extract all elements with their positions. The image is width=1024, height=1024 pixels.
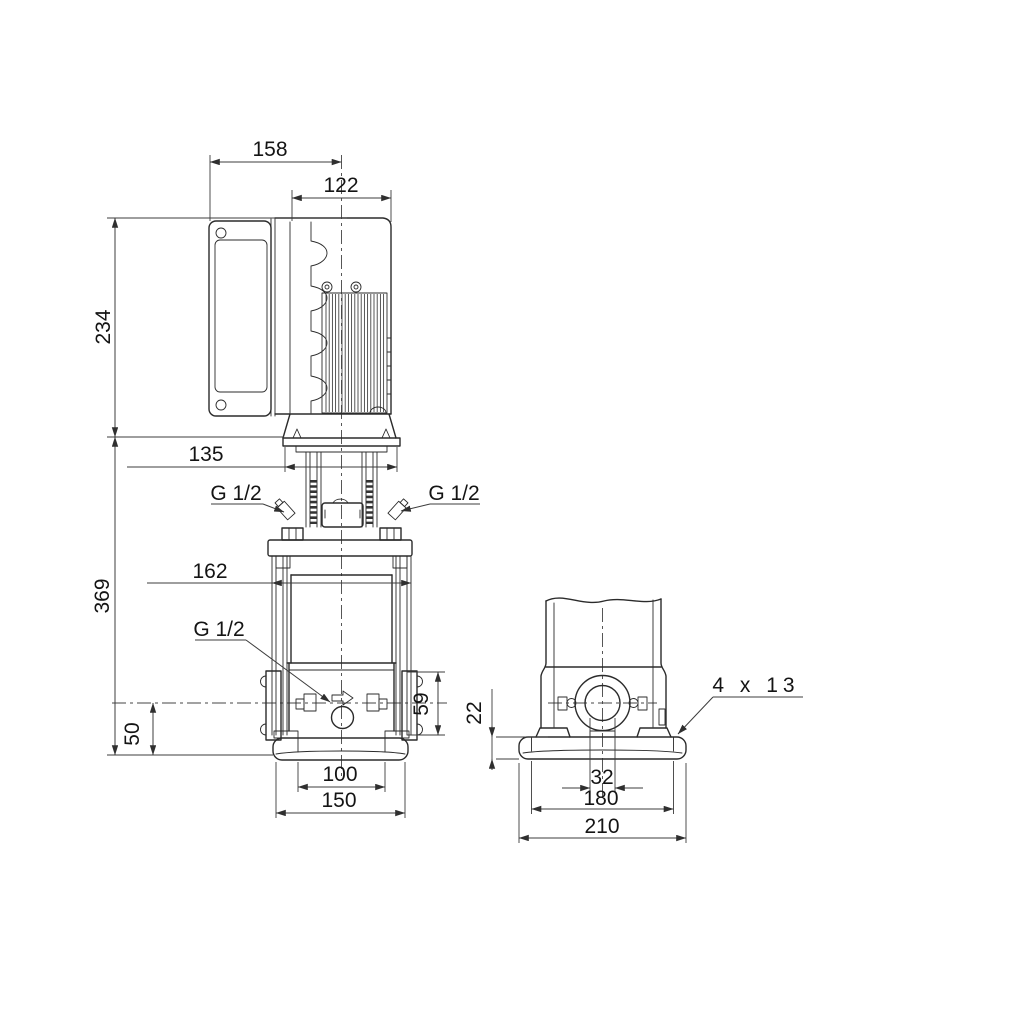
- dim-369-label: 369: [91, 578, 114, 613]
- dim-motor-height: 234: [92, 218, 347, 437]
- dim-122-label: 122: [323, 174, 358, 197]
- break-line: [546, 598, 661, 602]
- pump-head-flange: [268, 540, 412, 568]
- side-view: 22 32 180 210 4 x 13: [463, 598, 803, 843]
- cooling-rib-profile: [311, 222, 327, 413]
- dim-foot-spacing: 100: [298, 762, 385, 792]
- dim-base-plate-height: 22: [463, 689, 548, 770]
- dim-50-label: 50: [121, 722, 144, 745]
- dim-150-label: 150: [321, 789, 356, 812]
- vent-plug-left: [274, 498, 295, 520]
- dim-22-label: 22: [463, 701, 486, 724]
- label-drain-plug: G 1/2: [193, 618, 330, 702]
- chamber-bolt-left: [296, 694, 316, 711]
- dim-135-label: 135: [188, 443, 223, 466]
- foot-left: [536, 728, 570, 737]
- vent-plug-right: [388, 498, 409, 520]
- g12-drain-label: G 1/2: [193, 618, 244, 641]
- screw-icon: [351, 282, 361, 292]
- dim-234-label: 234: [92, 309, 115, 344]
- g12-right-label: G 1/2: [428, 482, 479, 505]
- front-view: 158 122 234 369 135: [91, 138, 480, 818]
- dim-port-centerline-height: 50: [121, 703, 153, 755]
- screw-hole-icon: [216, 400, 226, 410]
- screw-icon: [322, 282, 332, 292]
- dim-motor-flange-width: 135: [127, 443, 397, 472]
- dim-180-label: 180: [583, 787, 618, 810]
- pump-dimensional-drawing: 158 122 234 369 135: [0, 0, 1024, 1024]
- foot-right: [637, 728, 671, 737]
- dim-port-flange-height: 59: [407, 672, 445, 735]
- dim-overall-width: 158: [210, 138, 342, 221]
- side-body: [536, 598, 671, 737]
- coupling: [322, 503, 363, 527]
- label-vent-plug-left: G 1/2: [210, 482, 284, 512]
- dim-100-label: 100: [322, 763, 357, 786]
- motor-control-box: [209, 218, 275, 416]
- chamber-bolt-right: [367, 694, 387, 711]
- side-clip: [659, 709, 665, 725]
- dim-port-bore: 32: [562, 718, 643, 793]
- screw-icon: [354, 285, 358, 289]
- technical-drawing-canvas: 158 122 234 369 135: [0, 0, 1024, 1024]
- label-bolt-holes: 4 x 13: [678, 674, 803, 734]
- label-vent-plug-right: G 1/2: [401, 482, 480, 511]
- bolt-holes-label: 4 x 13: [712, 674, 799, 697]
- dim-59-label: 59: [410, 692, 433, 715]
- screw-hole-icon: [216, 228, 226, 238]
- screw-icon: [325, 285, 329, 289]
- drain-plug: [332, 707, 354, 729]
- g12-left-label: G 1/2: [210, 482, 261, 505]
- dim-162-label: 162: [192, 560, 227, 583]
- dim-158-label: 158: [252, 138, 287, 161]
- dim-32-label: 32: [590, 766, 613, 789]
- motor-fins: [322, 293, 391, 413]
- pump-base: [273, 731, 409, 760]
- dim-staybolt-width: 162: [147, 560, 411, 588]
- port-flange-left: [266, 671, 281, 740]
- dim-210-label: 210: [584, 815, 619, 838]
